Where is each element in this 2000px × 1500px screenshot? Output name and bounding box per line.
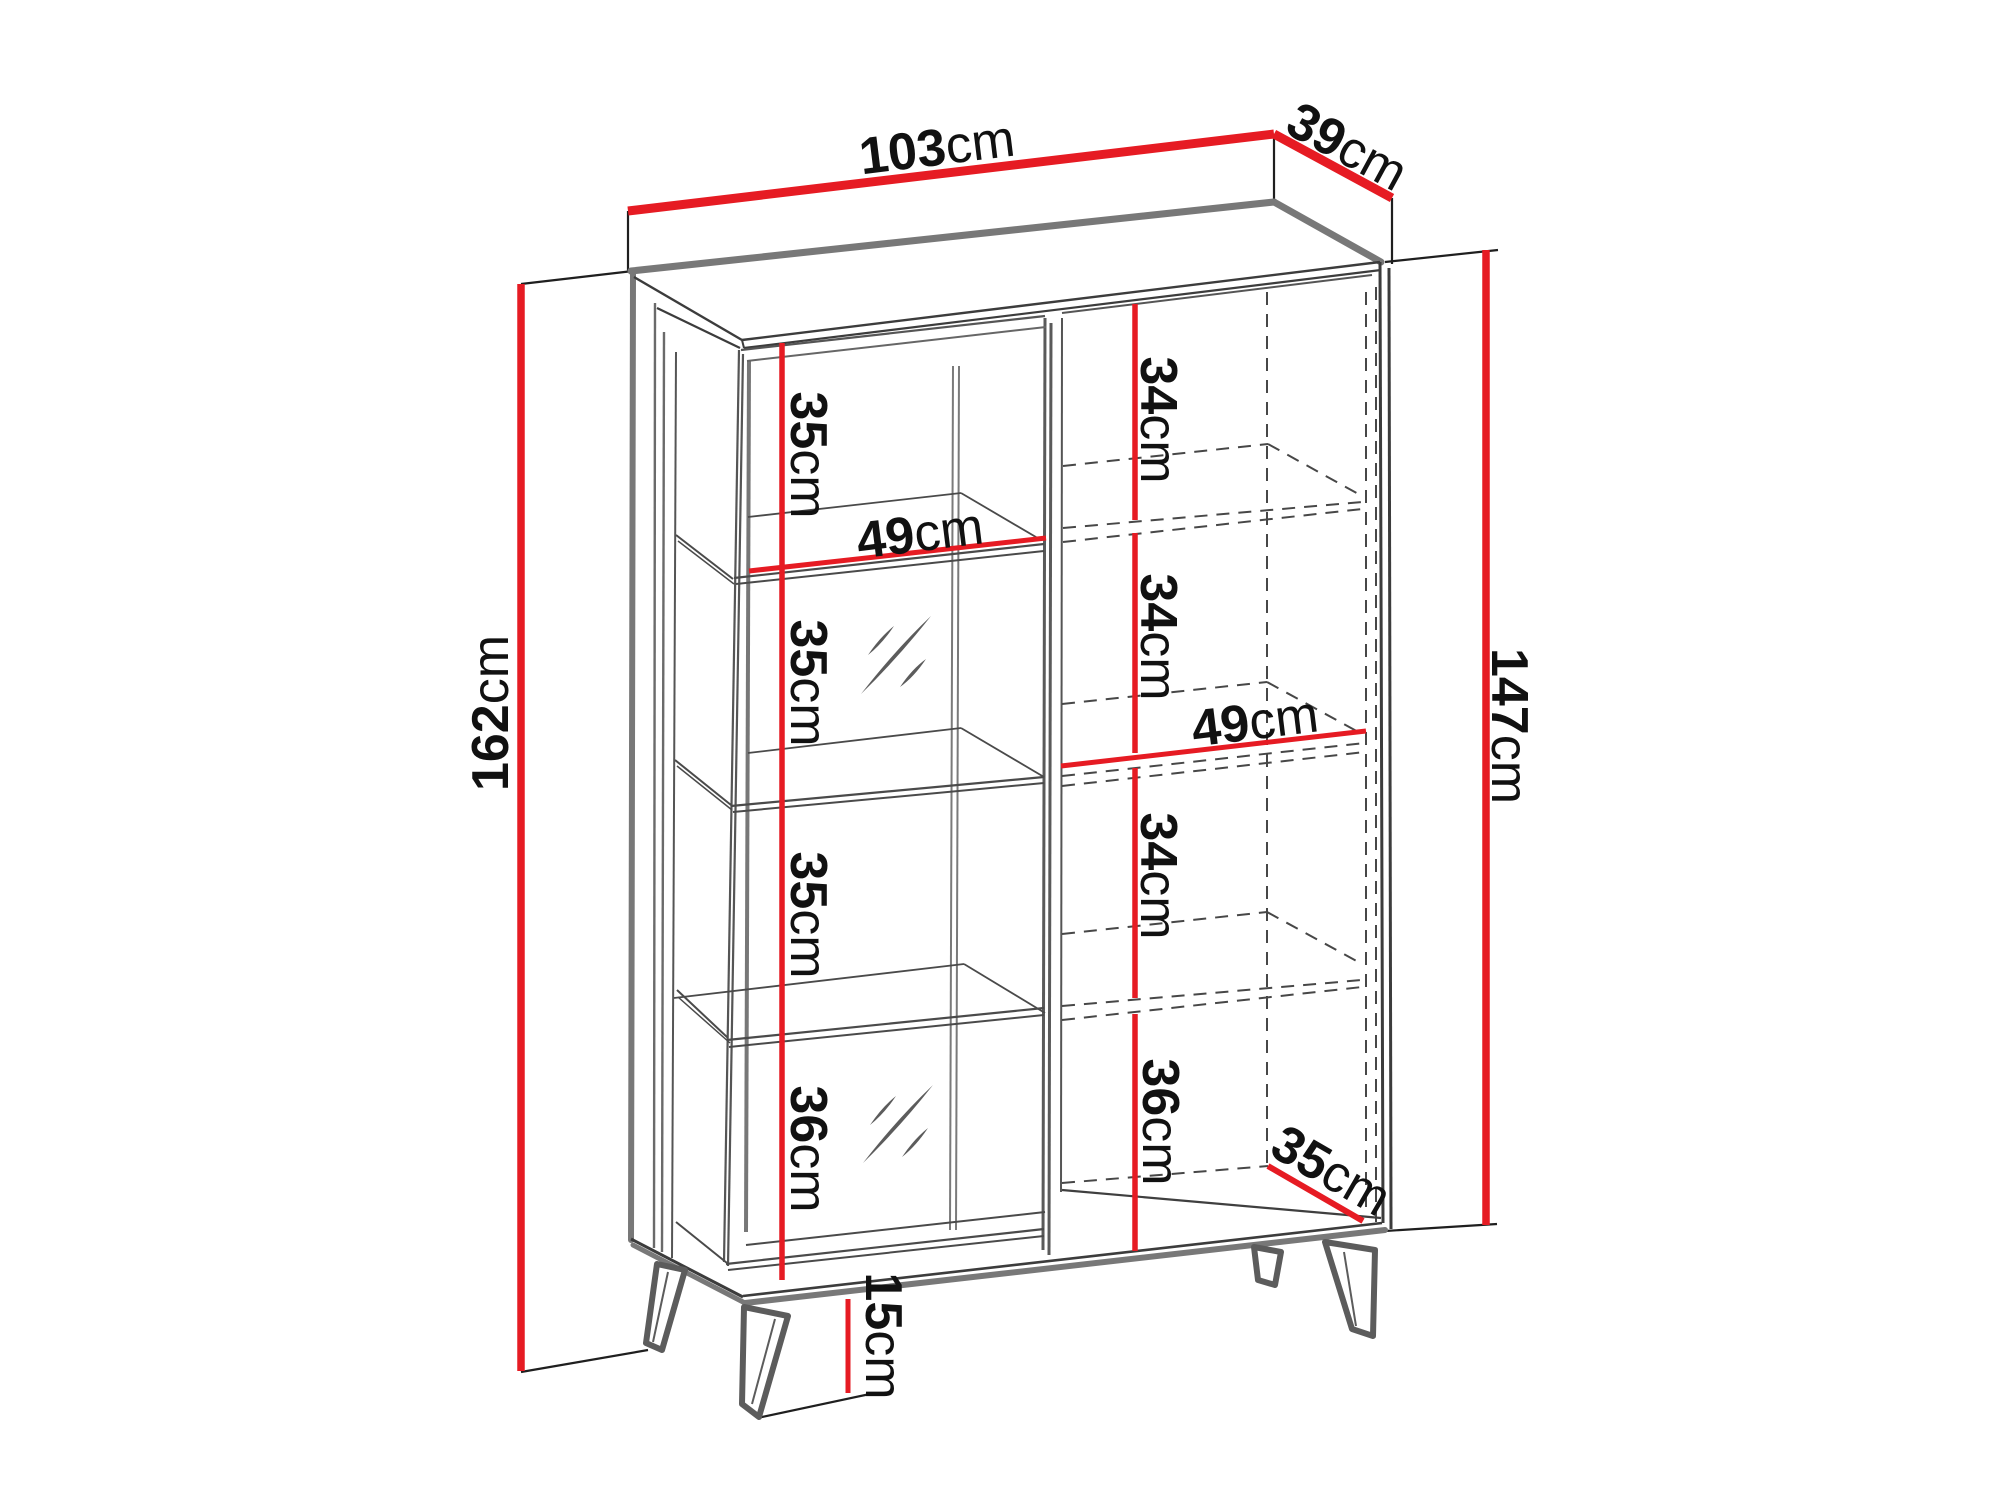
svg-text:36cm: 36cm — [1131, 1058, 1189, 1185]
svg-text:162cm: 162cm — [462, 635, 520, 791]
svg-text:34cm: 34cm — [1129, 812, 1187, 939]
svg-text:35cm: 35cm — [779, 391, 837, 518]
svg-text:147cm: 147cm — [1480, 648, 1538, 804]
svg-text:35cm: 35cm — [779, 619, 837, 746]
svg-text:15cm: 15cm — [854, 1272, 912, 1399]
svg-text:35cm: 35cm — [779, 851, 837, 978]
svg-text:34cm: 34cm — [1129, 573, 1187, 700]
svg-text:36cm: 36cm — [779, 1085, 837, 1212]
svg-text:34cm: 34cm — [1129, 356, 1187, 483]
